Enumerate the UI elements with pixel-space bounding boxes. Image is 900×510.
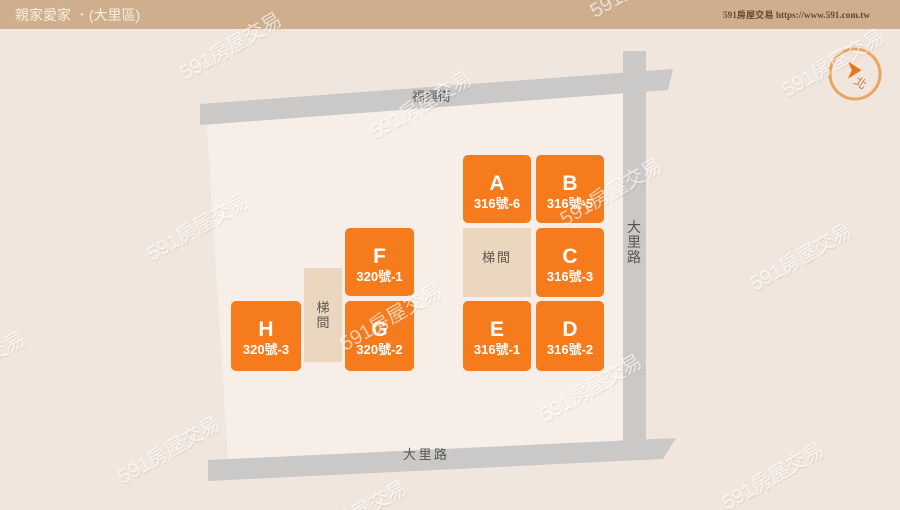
svg-text:北: 北 (851, 72, 871, 93)
